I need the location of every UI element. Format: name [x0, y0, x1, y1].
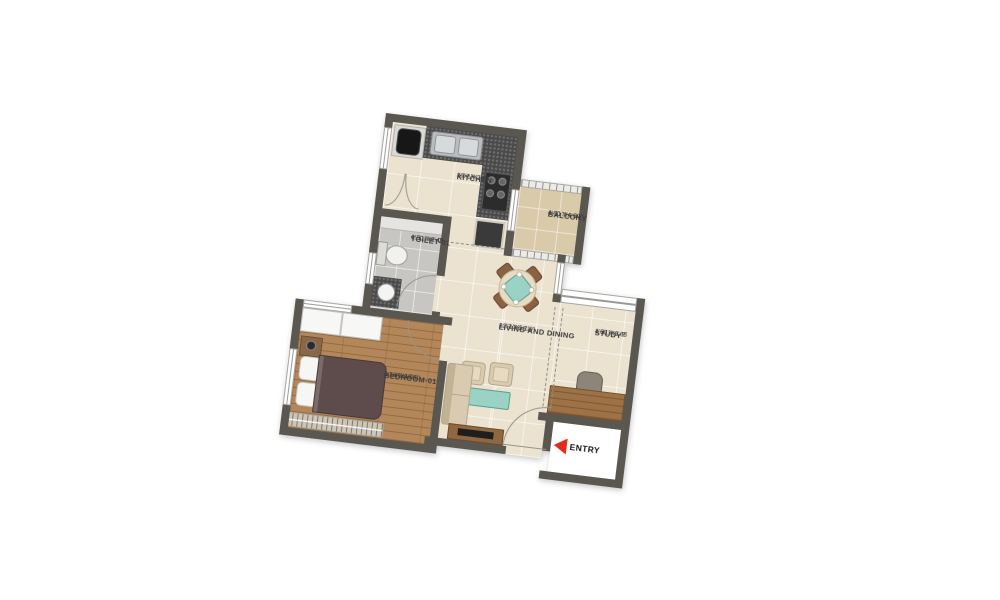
entry-text: ENTRY: [569, 442, 600, 456]
sink-bowl-left: [434, 134, 457, 154]
bed-duvet: [312, 355, 388, 421]
armchair-2-cushion: [492, 366, 510, 383]
entry-arrow-icon: [553, 437, 568, 454]
sink-bowl-right: [457, 137, 479, 157]
floor-plan: KITCHEN 10'-1"X7'-1" 3.07 X 2.15 BALCONY…: [271, 104, 703, 519]
hob-appliance: [395, 128, 422, 157]
floor-plan-image: KITCHEN 10'-1"X7'-1" 3.07 X 2.15 BALCONY…: [0, 0, 1000, 600]
